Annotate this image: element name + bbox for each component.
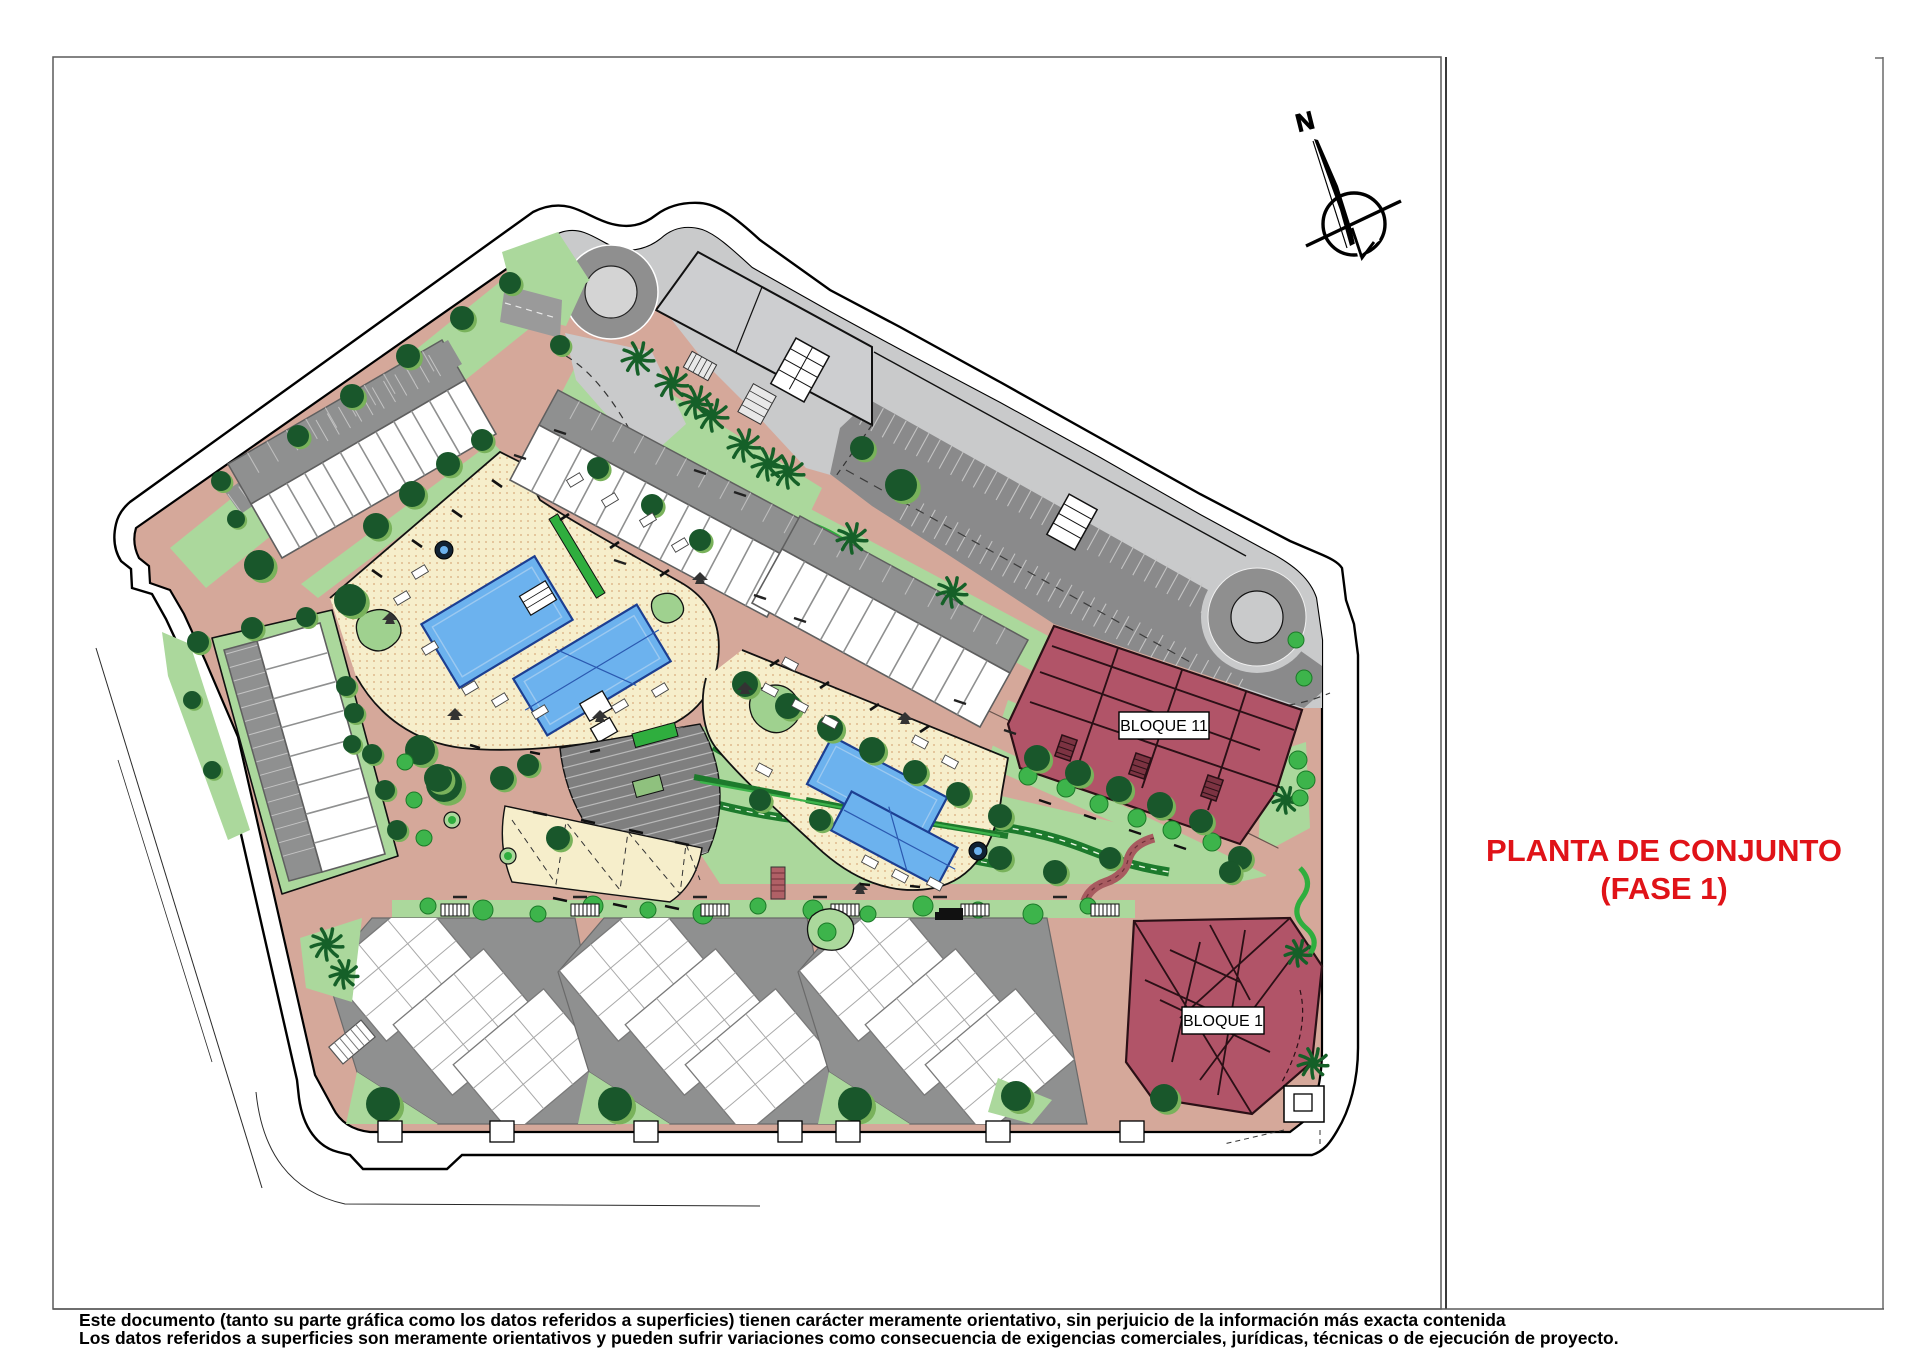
svg-text:Este documento (tanto su parte: Este documento (tanto su parte gráfica c… [79, 1310, 1506, 1330]
svg-text:(FASE 1): (FASE 1) [1600, 871, 1727, 906]
svg-text:Los datos referidos a superfic: Los datos referidos a superficies son me… [79, 1328, 1619, 1348]
svg-text:BLOQUE 11: BLOQUE 11 [1120, 718, 1208, 735]
svg-text:BLOQUE 1: BLOQUE 1 [1183, 1013, 1263, 1030]
svg-text:PLANTA DE CONJUNTO: PLANTA DE CONJUNTO [1486, 833, 1842, 868]
